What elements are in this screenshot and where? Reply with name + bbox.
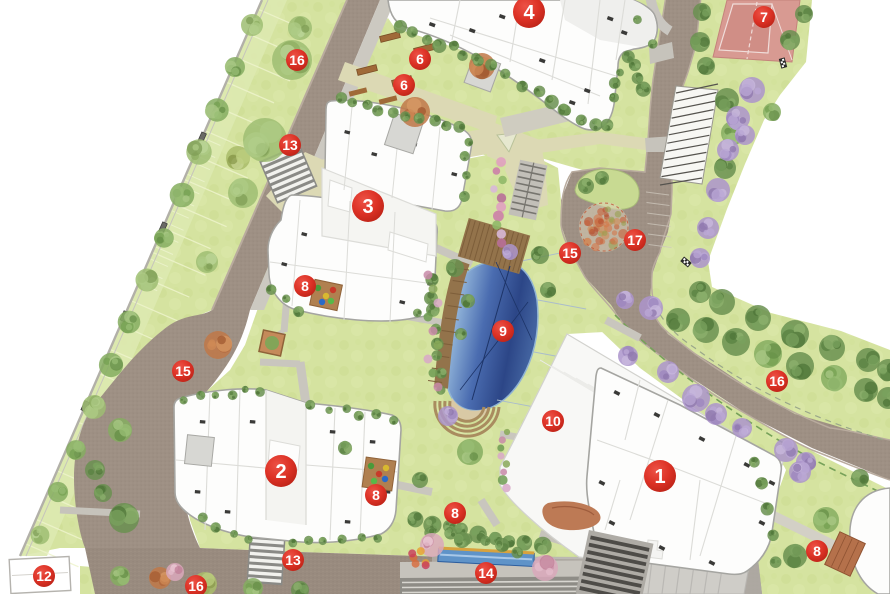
svg-text:10: 10 <box>545 413 561 429</box>
svg-text:8: 8 <box>372 487 380 503</box>
svg-text:9: 9 <box>499 323 507 339</box>
svg-text:16: 16 <box>188 578 204 594</box>
svg-text:15: 15 <box>562 245 578 261</box>
svg-text:4: 4 <box>523 2 535 24</box>
svg-text:15: 15 <box>175 363 191 379</box>
svg-text:8: 8 <box>451 505 459 521</box>
svg-text:17: 17 <box>627 232 643 248</box>
svg-text:13: 13 <box>285 552 301 568</box>
svg-text:6: 6 <box>400 77 408 93</box>
svg-text:6: 6 <box>416 51 424 67</box>
svg-text:3: 3 <box>362 196 373 218</box>
svg-text:14: 14 <box>478 565 494 581</box>
svg-text:1: 1 <box>654 466 665 488</box>
svg-text:2: 2 <box>275 461 286 483</box>
svg-text:8: 8 <box>813 543 821 559</box>
svg-text:12: 12 <box>36 568 52 584</box>
svg-text:16: 16 <box>769 373 785 389</box>
svg-text:8: 8 <box>301 278 309 294</box>
svg-text:16: 16 <box>289 52 305 68</box>
svg-text:13: 13 <box>282 137 298 153</box>
svg-text:7: 7 <box>760 9 768 25</box>
